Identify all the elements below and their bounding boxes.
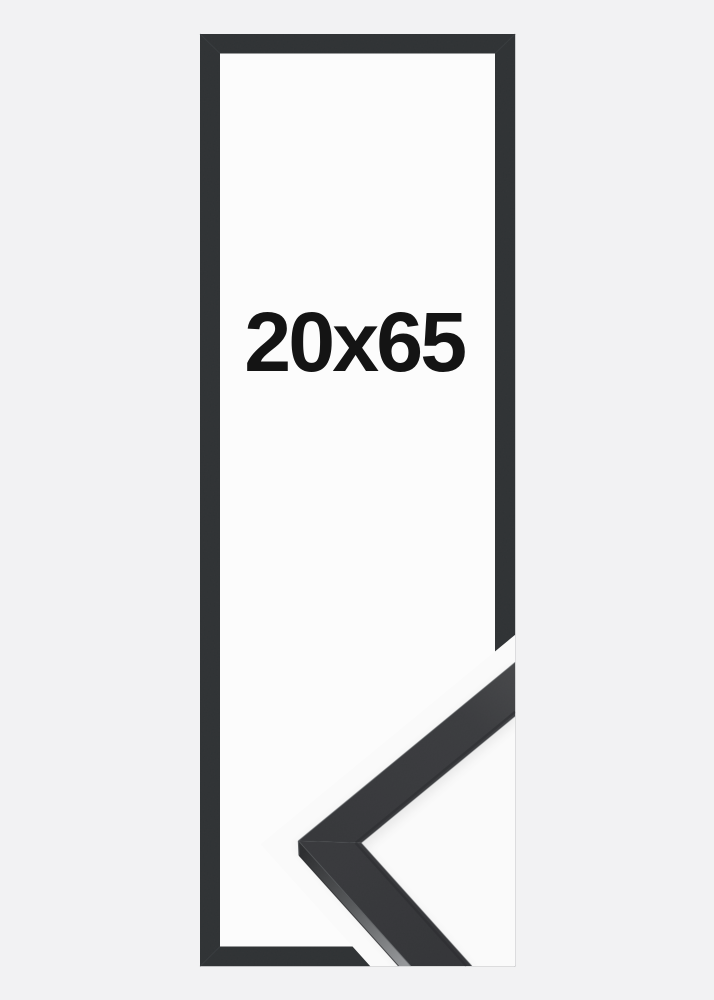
svg-text:20x65: 20x65 [244, 295, 467, 389]
